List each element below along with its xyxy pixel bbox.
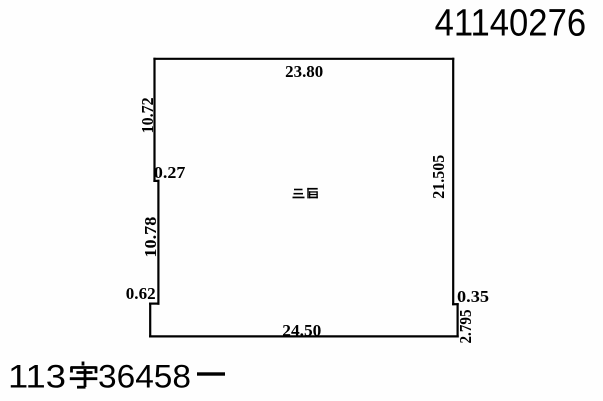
svg-text:0.35: 0.35 [457, 287, 489, 306]
svg-text:21.505: 21.505 [429, 155, 448, 199]
svg-text:23.80: 23.80 [285, 62, 323, 81]
svg-text:113: 113 [8, 358, 66, 395]
svg-text:10.78: 10.78 [141, 217, 160, 258]
svg-text:36458: 36458 [98, 358, 191, 395]
svg-text:24.50: 24.50 [282, 321, 321, 340]
svg-text:10.72: 10.72 [138, 97, 157, 133]
svg-text:0.62: 0.62 [126, 284, 156, 303]
svg-text:0.27: 0.27 [154, 163, 186, 182]
svg-text:2.795: 2.795 [456, 310, 475, 344]
svg-text:41140276: 41140276 [435, 2, 586, 45]
